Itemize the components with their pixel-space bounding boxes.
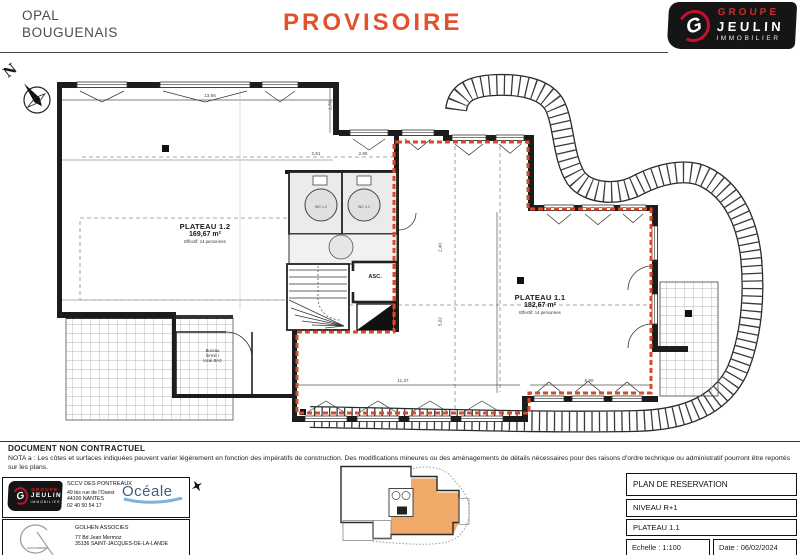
architect-address: GOLHEN ASSOCIES 77 Bd Jean Mermoz 35136 …: [75, 525, 168, 548]
plateau-11-label: PLATEAU 1.1 182,67 m² Effectif: 14 perso…: [485, 293, 595, 315]
dim-6-90: 6,90: [577, 378, 601, 383]
floor-plan: N PLATEAU 1.2 169,67 m² Effectif: 14 per…: [0, 57, 800, 443]
dim-2-73: 2,73: [328, 96, 333, 116]
pergola-grid-right: [660, 282, 718, 396]
plan-sheet: OPAL BOUGUENAIS PROVISOIRE G GROUPE JEUL…: [0, 0, 800, 555]
dim-5-02: 5,02: [438, 312, 443, 332]
provisional-watermark: PROVISOIRE: [283, 9, 462, 37]
jeulin-g-icon: G: [11, 485, 30, 507]
groupe-jeulin-logo-small: G GROUPE JEULIN IMMOBILIER: [7, 481, 63, 511]
wc-11-label: WC 1.1: [351, 205, 377, 209]
mini-north-icon: [191, 480, 203, 492]
key-plan-thumbnail: [333, 462, 473, 555]
elevator-shaft: [353, 262, 397, 302]
jeulin-g-icon: G: [674, 5, 713, 45]
toilet-icon: [313, 176, 327, 185]
dim-11-37: 11,37: [390, 378, 416, 383]
project-title: OPAL BOUGUENAIS: [22, 7, 118, 41]
titleblock-scale: Echelle : 1:100: [626, 539, 710, 555]
sheet-header: OPAL BOUGUENAIS PROVISOIRE G GROUPE JEUL…: [0, 0, 800, 55]
floor-plan-drawing: [0, 57, 800, 443]
logo-line-immobilier: IMMOBILIER: [716, 36, 784, 43]
dim-2-90: 2,90: [352, 151, 374, 156]
developer-box: G GROUPE JEULIN IMMOBILIER SCCV DES PONT…: [2, 477, 190, 518]
project-title-line1: OPAL: [22, 7, 118, 24]
architect-box: GOLHEN ASSOCIES 77 Bd Jean Mermoz 35136 …: [2, 519, 190, 555]
dim-2-40: 2,40: [438, 238, 443, 258]
titleblock-date: Date : 06/02/2024: [713, 539, 797, 555]
notes-divider: [0, 441, 800, 442]
north-compass-icon: [15, 77, 50, 113]
dim-13-66: 13,66: [195, 93, 225, 98]
wc-12-label: WC 1.2: [308, 205, 334, 209]
logo-line-groupe: GROUPE: [717, 8, 785, 18]
titleblock-row-plateau: PLATEAU 1.1: [626, 519, 797, 536]
golhen-ga-monogram-icon: [13, 522, 59, 555]
toilet-icon: [357, 176, 371, 185]
non-contractual-title: DOCUMENT NON CONTRACTUEL: [8, 444, 800, 453]
title-block: PLAN DE RESERVATION NIVEAU R+1 PLATEAU 1…: [626, 473, 797, 555]
project-title-line2: BOUGUENAIS: [22, 24, 118, 41]
groupe-jeulin-logo: G GROUPE JEULIN IMMOBILIER: [667, 2, 797, 49]
dim-2-61: 2,61: [305, 151, 327, 156]
door-arcs: [628, 266, 652, 348]
plateau-12-label: PLATEAU 1.2 169,67 m² Effectif: 14 perso…: [150, 222, 260, 244]
elevator-label: ASC.: [362, 274, 388, 280]
logo-line-jeulin: JEULIN: [717, 20, 785, 33]
header-divider: [0, 52, 668, 53]
titleblock-row-plan: PLAN DE RESERVATION: [626, 473, 797, 496]
oceale-logo: Océale: [122, 483, 184, 505]
office-label: Bureau fermé / local BA3: [185, 348, 240, 363]
titleblock-row-niveau: NIVEAU R+1: [626, 499, 797, 517]
terrace-grid-left: [66, 318, 233, 420]
